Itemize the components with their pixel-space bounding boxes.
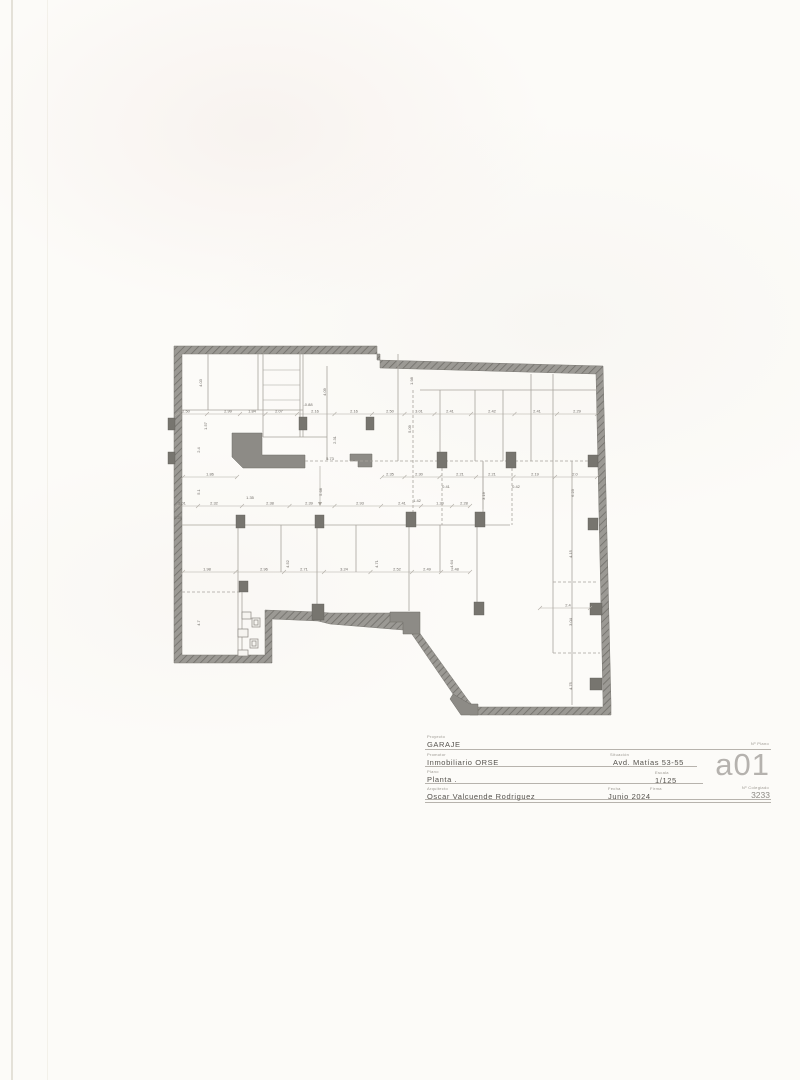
svg-text:5.09: 5.09 xyxy=(407,424,412,433)
svg-text:2.41: 2.41 xyxy=(446,408,455,413)
svg-text:2.29: 2.29 xyxy=(573,408,582,413)
svg-text:2.93: 2.93 xyxy=(356,500,365,505)
svg-text:-0.88: -0.88 xyxy=(303,402,313,407)
svg-text:4.15: 4.15 xyxy=(568,549,573,558)
svg-text:2.4: 2.4 xyxy=(196,446,201,452)
svg-text:5.1: 5.1 xyxy=(196,488,201,494)
svg-text:1.98: 1.98 xyxy=(203,566,212,571)
title-block: Proyecto GARAJE Promotor Inmobiliario OR… xyxy=(425,733,771,805)
svg-text:1.98: 1.98 xyxy=(409,376,414,385)
svg-text:1.84: 1.84 xyxy=(248,408,257,413)
svg-text:2.0: 2.0 xyxy=(572,471,578,476)
project-label: Proyecto xyxy=(427,734,445,739)
svg-text:2.41: 2.41 xyxy=(398,500,407,505)
svg-text:3.19: 3.19 xyxy=(481,491,486,500)
svg-text:0.42: 0.42 xyxy=(512,484,521,489)
svg-text:2.16: 2.16 xyxy=(311,408,320,413)
svg-text:2.35: 2.35 xyxy=(386,471,395,476)
floor-plan: 2.502.991.842.072.162.162.503.012.412.42… xyxy=(0,0,800,1080)
svg-text:2.01: 2.01 xyxy=(178,500,187,505)
sheet-label: Plano xyxy=(427,769,439,774)
signature-label: Firma xyxy=(650,786,662,791)
wc-fixture xyxy=(238,650,248,656)
svg-text:2.21: 2.21 xyxy=(456,471,465,476)
svg-text:6.23: 6.23 xyxy=(570,488,575,497)
stair-core xyxy=(232,433,372,468)
wc-fixture xyxy=(242,612,251,619)
wc-fixture xyxy=(238,629,248,637)
svg-text:4.52: 4.52 xyxy=(285,559,290,568)
columns xyxy=(236,417,516,620)
svg-text:1.42: 1.42 xyxy=(413,498,422,503)
author-label: Arquitecto xyxy=(427,786,448,791)
wc-room xyxy=(238,592,260,656)
svg-text:2.4: 2.4 xyxy=(565,602,571,607)
svg-text:3.04: 3.04 xyxy=(568,617,573,626)
svg-text:3.24: 3.24 xyxy=(340,566,349,571)
svg-text:1.35: 1.35 xyxy=(246,495,255,500)
svg-text:4.64: 4.64 xyxy=(449,559,454,568)
svg-text:2.71: 2.71 xyxy=(300,566,309,571)
svg-text:2.99: 2.99 xyxy=(224,408,233,413)
license-number: 3233 xyxy=(751,790,770,800)
sheet-number: a01 xyxy=(715,749,770,780)
svg-text:5.73: 5.73 xyxy=(326,456,335,461)
scale-label: Escala xyxy=(655,770,669,775)
location-label: Situación xyxy=(610,752,629,757)
svg-text:2.41: 2.41 xyxy=(533,408,542,413)
svg-text:1.20: 1.20 xyxy=(436,500,445,505)
project-title: GARAJE xyxy=(427,740,461,749)
svg-text:0.28: 0.28 xyxy=(174,515,183,520)
svg-text:2.30: 2.30 xyxy=(415,471,424,476)
svg-text:2.52: 2.52 xyxy=(393,566,402,571)
svg-text:2.21: 2.21 xyxy=(488,471,497,476)
rule xyxy=(425,783,703,784)
promoter-label: Promotor xyxy=(427,752,446,757)
svg-text:3.01: 3.01 xyxy=(415,408,424,413)
svg-text:2.39: 2.39 xyxy=(305,500,314,505)
svg-text:2.50: 2.50 xyxy=(182,408,191,413)
rule xyxy=(425,802,771,803)
svg-text:2.49: 2.49 xyxy=(423,566,432,571)
svg-text:4.71: 4.71 xyxy=(374,559,379,568)
svg-text:1.86: 1.86 xyxy=(206,471,215,476)
svg-text:4.03: 4.03 xyxy=(198,378,203,387)
svg-text:4.7: 4.7 xyxy=(196,619,201,625)
svg-text:5.68: 5.68 xyxy=(318,487,323,496)
scanned-page: 2.502.991.842.072.162.162.503.012.412.42… xyxy=(0,0,800,1080)
svg-text:2.19: 2.19 xyxy=(531,471,540,476)
svg-text:2.28: 2.28 xyxy=(460,500,469,505)
rule xyxy=(425,799,771,800)
svg-text:2.16: 2.16 xyxy=(350,408,359,413)
rule xyxy=(425,766,697,767)
svg-text:2.96: 2.96 xyxy=(260,566,269,571)
svg-text:0.41: 0.41 xyxy=(442,484,451,489)
outer-walls xyxy=(168,346,611,715)
svg-text:4.09: 4.09 xyxy=(322,387,327,396)
svg-text:2.42: 2.42 xyxy=(488,408,497,413)
date-label: Fecha xyxy=(608,786,621,791)
wing-wall xyxy=(350,454,372,467)
svg-text:2.31: 2.31 xyxy=(332,435,337,444)
svg-text:2.50: 2.50 xyxy=(386,408,395,413)
svg-text:2.07: 2.07 xyxy=(275,408,284,413)
svg-text:2.38: 2.38 xyxy=(266,500,275,505)
svg-text:1.57: 1.57 xyxy=(203,421,208,430)
sheet-number-label: Nº Plano xyxy=(751,741,769,746)
svg-text:4.75: 4.75 xyxy=(568,681,573,690)
svg-text:2.32: 2.32 xyxy=(210,500,219,505)
